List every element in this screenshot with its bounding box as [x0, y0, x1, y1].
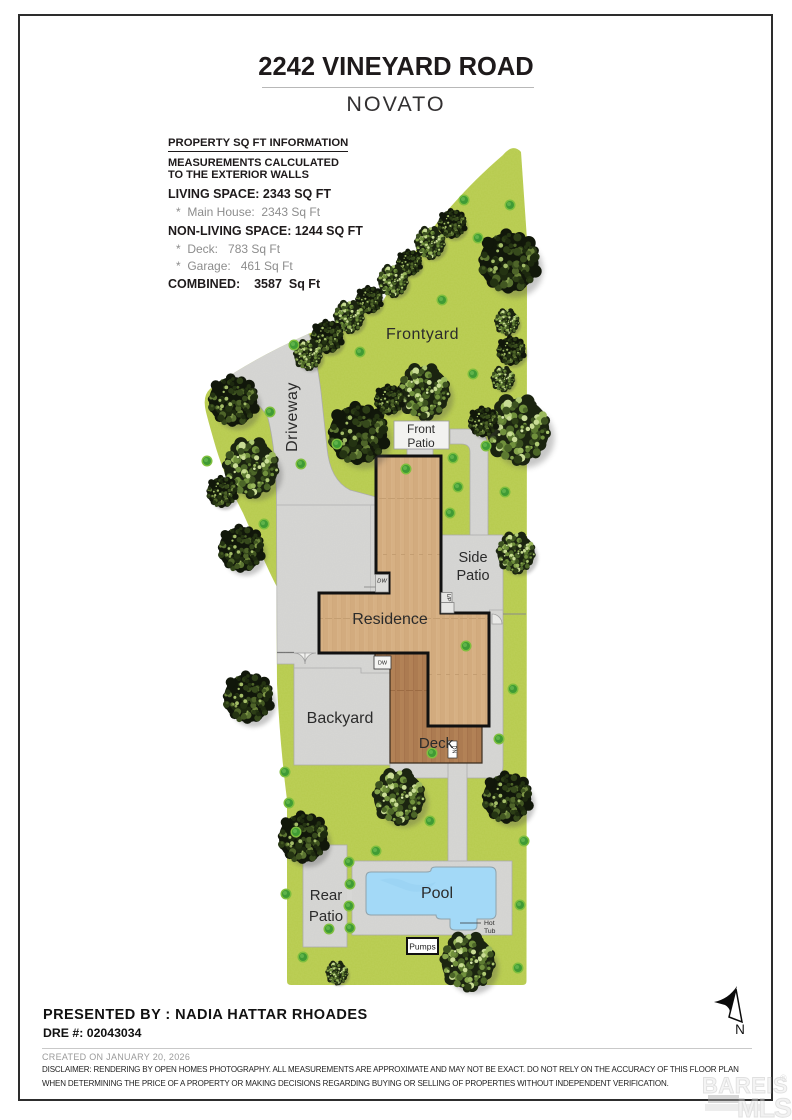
svg-text:UP: UP	[445, 594, 451, 602]
svg-text:Patio: Patio	[407, 436, 435, 450]
svg-text:Hot: Hot	[484, 920, 495, 927]
svg-text:Patio: Patio	[456, 568, 489, 584]
svg-text:Front: Front	[407, 422, 436, 436]
svg-text:Tub: Tub	[484, 928, 496, 935]
svg-text:MLS: MLS	[737, 1093, 791, 1120]
svg-text:Driveway: Driveway	[284, 382, 301, 452]
svg-text:Side: Side	[458, 550, 487, 566]
svg-text:Patio: Patio	[309, 908, 343, 925]
svg-text:N: N	[735, 1022, 745, 1037]
svg-text:Frontyard: Frontyard	[386, 326, 459, 343]
svg-text:Deck: Deck	[419, 735, 454, 752]
svg-text:Residence: Residence	[352, 611, 428, 628]
svg-text:Rear: Rear	[310, 887, 343, 904]
svg-text:DW: DW	[377, 579, 387, 585]
svg-text:Pool: Pool	[421, 885, 453, 902]
svg-text:Pumps: Pumps	[409, 942, 435, 952]
svg-text:DW: DW	[378, 661, 388, 667]
svg-text:Backyard: Backyard	[307, 710, 374, 727]
